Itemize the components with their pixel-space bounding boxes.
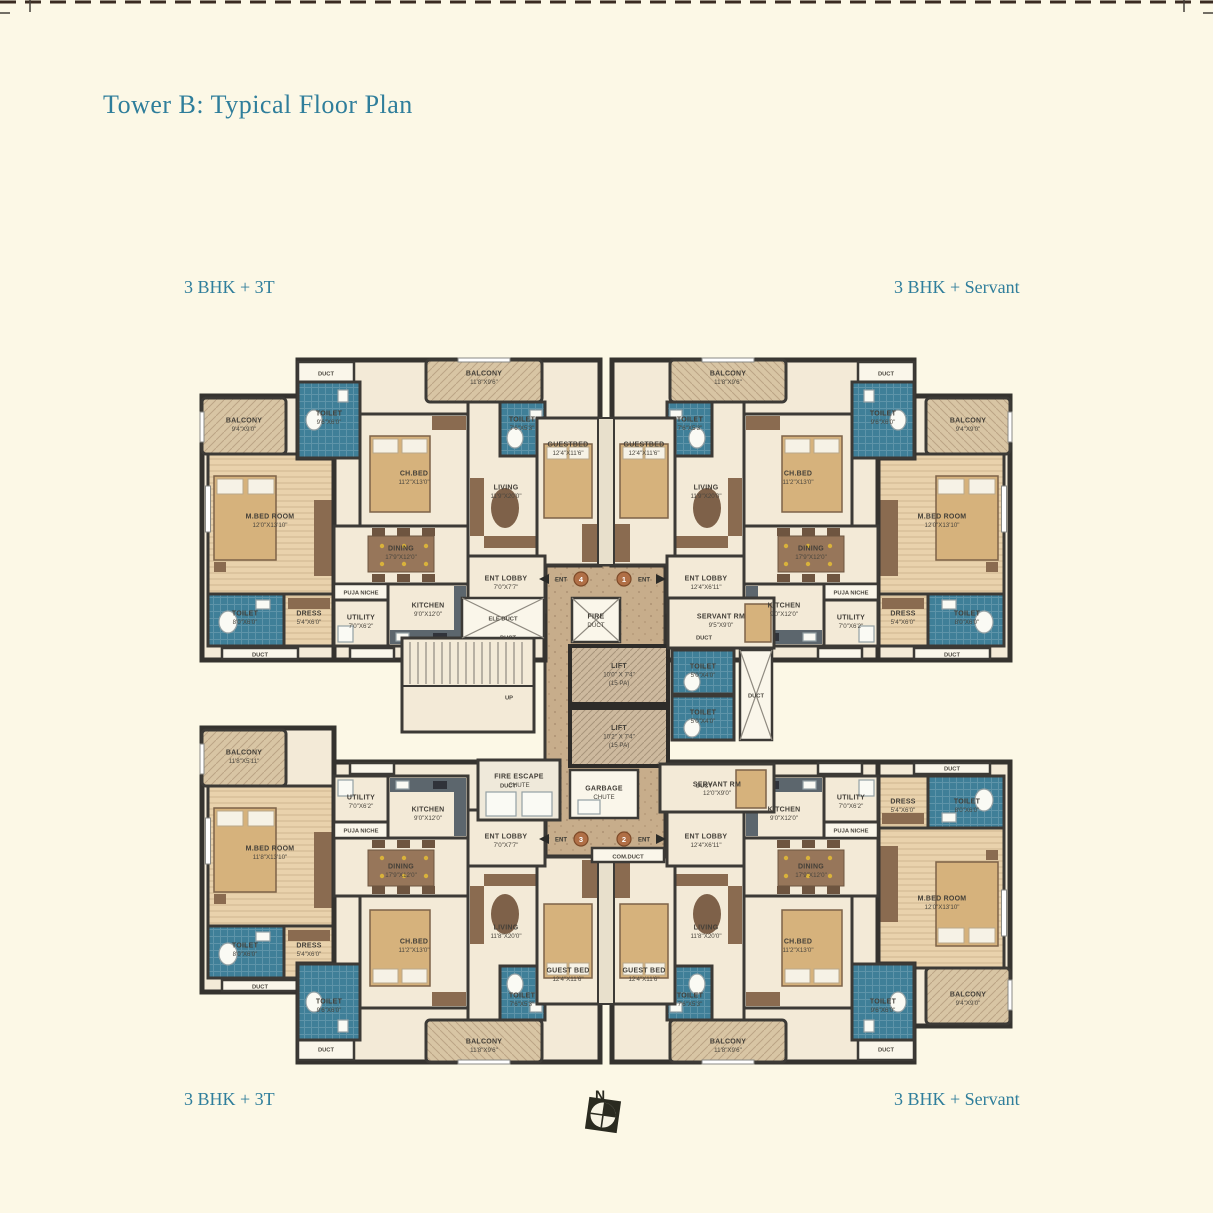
room-label: CH.BED: [400, 470, 428, 477]
svg-text:ENT: ENT: [555, 577, 567, 583]
room-label: DUCT: [878, 372, 895, 378]
room-label: GUESTBED: [548, 441, 589, 448]
room-label: LIFT: [611, 663, 627, 670]
room-label: UTILITY: [347, 794, 375, 801]
room-label: UP: [505, 696, 513, 702]
room-label: CH.BED: [784, 470, 812, 477]
room-label: 11'8"X9'6": [470, 379, 498, 386]
room-label: 9'4"X9'0": [232, 426, 257, 433]
room-label: GUESTBED: [624, 441, 665, 448]
compass-icon: [585, 1097, 621, 1133]
room-label: TOILET: [232, 610, 259, 617]
room-label: GUEST BED: [546, 967, 589, 974]
room-label: CHUTE: [593, 794, 614, 801]
room-label: TOILET: [870, 998, 897, 1005]
room-label: 8'0"X6'0": [955, 619, 980, 626]
room-label: DUCT: [878, 1048, 895, 1054]
room-label: BALCONY: [710, 1038, 746, 1045]
room-label: DRESS: [296, 610, 321, 617]
room-label: TOILET: [677, 416, 704, 423]
room-label: BALCONY: [466, 370, 502, 377]
room-label: 11'2"X13'0": [398, 947, 429, 954]
room-label: 5'4"X6'0": [891, 807, 916, 814]
room-label: 11'9"X20'0": [490, 493, 521, 500]
room-label: 11'8"X20'0": [490, 933, 521, 940]
floor-plan-page: { "page": { "title": "Tower B: Typical F…: [0, 0, 1213, 1213]
room-label: 9'6"X6'0": [317, 1007, 342, 1014]
room-label: 11'2"X13'0": [782, 479, 813, 486]
room-label: DINING: [798, 863, 824, 870]
room-label: TOILET: [316, 998, 343, 1005]
room-label: ENT LOBBY: [685, 833, 728, 840]
room-label: DUCT: [252, 985, 269, 991]
room-label: 12'4"X11'6": [552, 976, 583, 983]
room-label: DUCT: [318, 1048, 335, 1054]
room-label: (15 PA): [609, 742, 630, 749]
room-label: BALCONY: [226, 417, 262, 424]
room-label: COM.DUCT: [612, 855, 644, 861]
room-label: KITCHEN: [768, 806, 801, 813]
svg-text:ENT: ENT: [638, 577, 650, 583]
room-label: BALCONY: [950, 991, 986, 998]
room-label: 5'0"X4'0": [691, 672, 716, 679]
room-label: M.BED ROOM: [918, 895, 967, 902]
room-label: TOILET: [232, 942, 259, 949]
room-label: 9'6"X6'0": [871, 1007, 896, 1014]
room-label: LIVING: [494, 924, 519, 931]
room-label: TOILET: [690, 709, 717, 716]
room-label: 9'0"X12'0": [770, 815, 798, 822]
room-label: KITCHEN: [768, 602, 801, 609]
room-label: ELE DUCT: [489, 617, 518, 623]
room-label: BALCONY: [950, 417, 986, 424]
room-label: 10'2" X 7'4": [603, 734, 635, 741]
room-label: DUCT: [252, 653, 269, 659]
service-shaft: [598, 418, 614, 565]
room-label: 17'9"X12'0": [795, 554, 827, 561]
room-label: UTILITY: [347, 614, 375, 621]
room-label: 7'6"X5'3": [678, 1001, 703, 1008]
room-label: 9'6"X6'0": [871, 419, 896, 426]
room-label: 17'9"X12'0": [385, 554, 417, 561]
room-label: M.BED ROOM: [246, 513, 295, 520]
room-label: BALCONY: [710, 370, 746, 377]
room-label: 8'0"X6'0": [233, 951, 258, 958]
room-label: DRESS: [890, 610, 915, 617]
room-label: PUJA NICHE: [344, 829, 379, 835]
north-compass: N: [585, 1087, 621, 1133]
room-label: BALCONY: [466, 1038, 502, 1045]
room-label: KITCHEN: [412, 806, 445, 813]
room-label: PUJA NICHE: [344, 591, 379, 597]
room-label: 9'6"X6'0": [317, 419, 342, 426]
room-label: ENT LOBBY: [685, 575, 728, 582]
room-label: 11'8"X20'0": [690, 933, 721, 940]
room-label: 12'4"X11'6": [628, 450, 659, 457]
room-label: LIFT: [611, 725, 627, 732]
room-label: CH.BED: [784, 938, 812, 945]
room-label: LIVING: [494, 484, 519, 491]
svg-text:ENT: ENT: [555, 837, 567, 843]
room-label: 7'0"X6'2": [349, 803, 374, 810]
room-label: 11'8"X13'10": [253, 854, 288, 861]
room-label: 12'0"X13'10": [925, 522, 960, 529]
room-label: 12'4"X6'11": [690, 584, 721, 591]
room-label: M.BED ROOM: [246, 845, 295, 852]
room-label: 7'6"X5'3": [510, 1001, 535, 1008]
room-label: TOILET: [509, 992, 536, 999]
room-label: 5'4"X6'0": [297, 619, 322, 626]
room-label: 9'5"X9'0": [709, 622, 734, 629]
room-label: FIRE: [588, 613, 605, 620]
room-label: DUCT: [944, 767, 961, 773]
room-label: 12'0"X9'0": [703, 790, 731, 797]
room-label: 7'0"X7'7": [494, 842, 519, 849]
room-label: DUCT: [696, 636, 713, 642]
room-label: TOILET: [316, 410, 343, 417]
room-label: FIRE ESCAPE: [494, 773, 544, 780]
room-label: DRESS: [890, 798, 915, 805]
room-label: TOILET: [954, 798, 981, 805]
room-label: 7'6"X5'3": [678, 425, 703, 432]
svg-text:3: 3: [579, 835, 583, 844]
room-label: DUCT: [944, 653, 961, 659]
room-label: 11'2"X13'0": [398, 479, 429, 486]
room-label: M.BED ROOM: [918, 513, 967, 520]
room-label: 17'9"X12'0": [385, 872, 417, 879]
room-label: 9'0"X12'0": [414, 611, 442, 618]
room-label: SERVANT RM: [693, 781, 741, 788]
svg-text:1: 1: [622, 575, 626, 584]
room-label: DUCT: [500, 636, 517, 642]
room-label: DINING: [798, 545, 824, 552]
room-label: GUEST BED: [622, 967, 665, 974]
room-label: UTILITY: [837, 794, 865, 801]
room-label: 7'0"X6'2": [349, 623, 374, 630]
room-label: GARBAGE: [585, 785, 623, 792]
room-label: 12'4"X11'6": [628, 976, 659, 983]
room-label: DINING: [388, 545, 414, 552]
room-label: (15 PA): [609, 680, 630, 687]
room-label: LIVING: [694, 924, 719, 931]
room-label: 7'0"X7'7": [494, 584, 519, 591]
room-label: UTILITY: [837, 614, 865, 621]
room-label: 11'8"X9'6": [714, 379, 742, 386]
room-label: 11'2"X13'0": [782, 947, 813, 954]
room-label: 11'8"X9'6": [470, 1047, 498, 1054]
room-label: 7'0"X6'2": [839, 803, 864, 810]
room-label: 11'8"X5'11": [229, 758, 260, 765]
room-label: TOILET: [870, 410, 897, 417]
room-label: 12'0"X13'10": [253, 522, 288, 529]
room-label: BALCONY: [226, 749, 262, 756]
room-label: 8'0"X6'0": [233, 619, 258, 626]
room-label: 11'8"X9'6": [714, 1047, 742, 1054]
room-label: TOILET: [954, 610, 981, 617]
svg-text:2: 2: [622, 835, 626, 844]
room-label: 5'4"X6'0": [891, 619, 916, 626]
room-label: PUJA NICHE: [834, 829, 869, 835]
room-label: DUCT: [748, 694, 765, 700]
floor-plan: ENT 4 1 ENT ENT 3 2 ENT BALCONY9'4"X9'0"…: [0, 0, 1213, 1213]
room-label: 7'6"X5'3": [510, 425, 535, 432]
room-label: 9'0"X12'0": [770, 611, 798, 618]
room-label: 5'4"X6'0": [297, 951, 322, 958]
room-label: 11'9"X20'0": [690, 493, 721, 500]
room-label: TOILET: [677, 992, 704, 999]
room-label: DINING: [388, 863, 414, 870]
room-label: 17'9"X12'0": [795, 872, 827, 879]
room-label: 8'0"X6'0": [955, 807, 980, 814]
room-label: 12'4"X11'6": [552, 450, 583, 457]
room-label: 7'0"X6'2": [839, 623, 864, 630]
room-label: TOILET: [509, 416, 536, 423]
room-label: SERVANT RM: [697, 613, 745, 620]
room-label: 10'0" X 7'4": [603, 672, 635, 679]
svg-text:ENT: ENT: [638, 837, 650, 843]
room-label: LIVING: [694, 484, 719, 491]
room-label: TOILET: [690, 663, 717, 670]
room-label: 12'0"X13'10": [925, 904, 960, 911]
room-label: PUJA NICHE: [834, 591, 869, 597]
room-label: 9'4"X9'0": [956, 426, 981, 433]
room-label: 12'4"X6'11": [690, 842, 721, 849]
room-label: ENT LOBBY: [485, 575, 528, 582]
room-label: CH.BED: [400, 938, 428, 945]
room-label: ENT LOBBY: [485, 833, 528, 840]
room-label: 9'4"X9'0": [956, 1000, 981, 1007]
room-label: DUCT: [587, 622, 604, 629]
room-label: DUCT: [318, 372, 335, 378]
room-label: DRESS: [296, 942, 321, 949]
room-label: CHUTE: [508, 782, 529, 789]
room-label: 5'0"X4'0": [691, 718, 716, 725]
service-shaft: [598, 862, 614, 1004]
room-label: 9'0"X12'0": [414, 815, 442, 822]
room-label: KITCHEN: [412, 602, 445, 609]
